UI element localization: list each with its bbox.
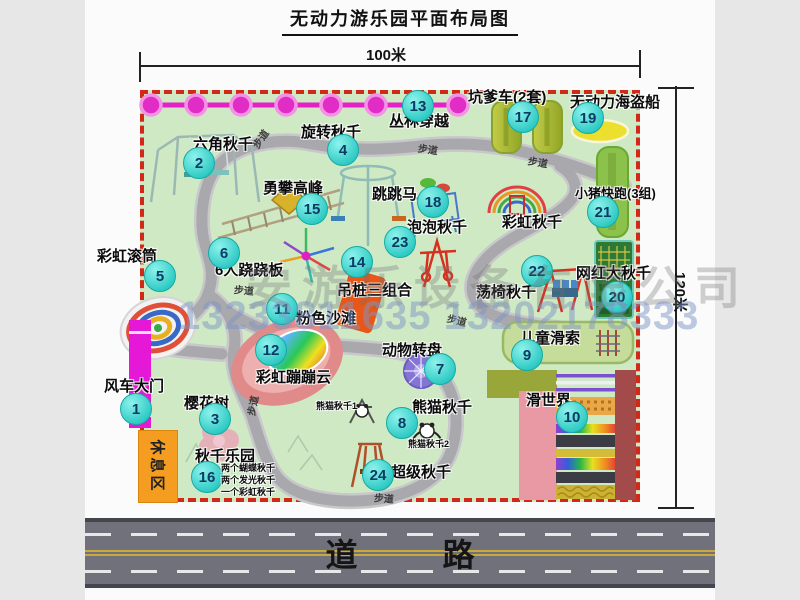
playground-layout-map: 无动力游乐园平面布局图 100米 120米 休息区 风车大门1六角秋千2樱花树3…: [0, 0, 800, 600]
rest-area-label: 休息区: [148, 439, 169, 493]
road-label: 道 路: [85, 530, 715, 576]
park-area: [140, 90, 640, 502]
road: 道 路: [85, 518, 715, 588]
width-dimension-label: 100米: [366, 44, 406, 65]
rest-area: 休息区: [138, 430, 178, 503]
height-dimension-label: 120米: [670, 272, 691, 312]
page-title: 无动力游乐园平面布局图: [282, 5, 518, 36]
